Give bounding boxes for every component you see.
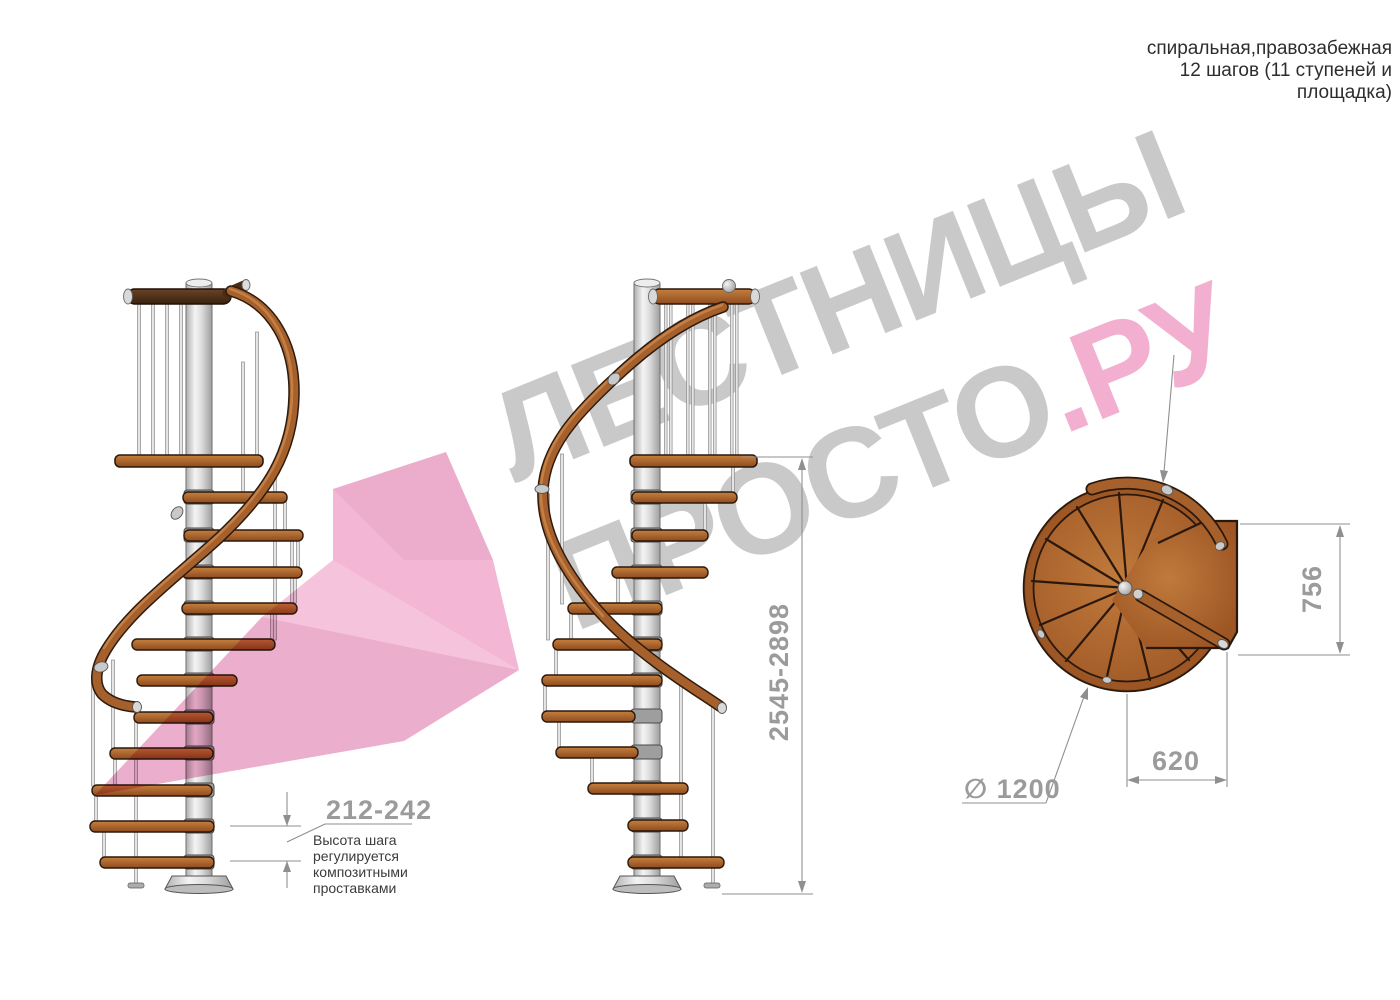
title-line-2: 12 шагов (11 ступеней и [972,60,1392,82]
logo-arrow-watermark [0,0,1400,1000]
title-line-1: спиральная,правозабежная [972,38,1392,60]
title-line-3: площадка) [972,82,1392,104]
drawing-canvas: ЛЕСТНИЦЫ ПРОСТО.РУ [0,0,1400,1000]
title-block: спиральная,правозабежная 12 шагов (11 ст… [972,38,1392,104]
